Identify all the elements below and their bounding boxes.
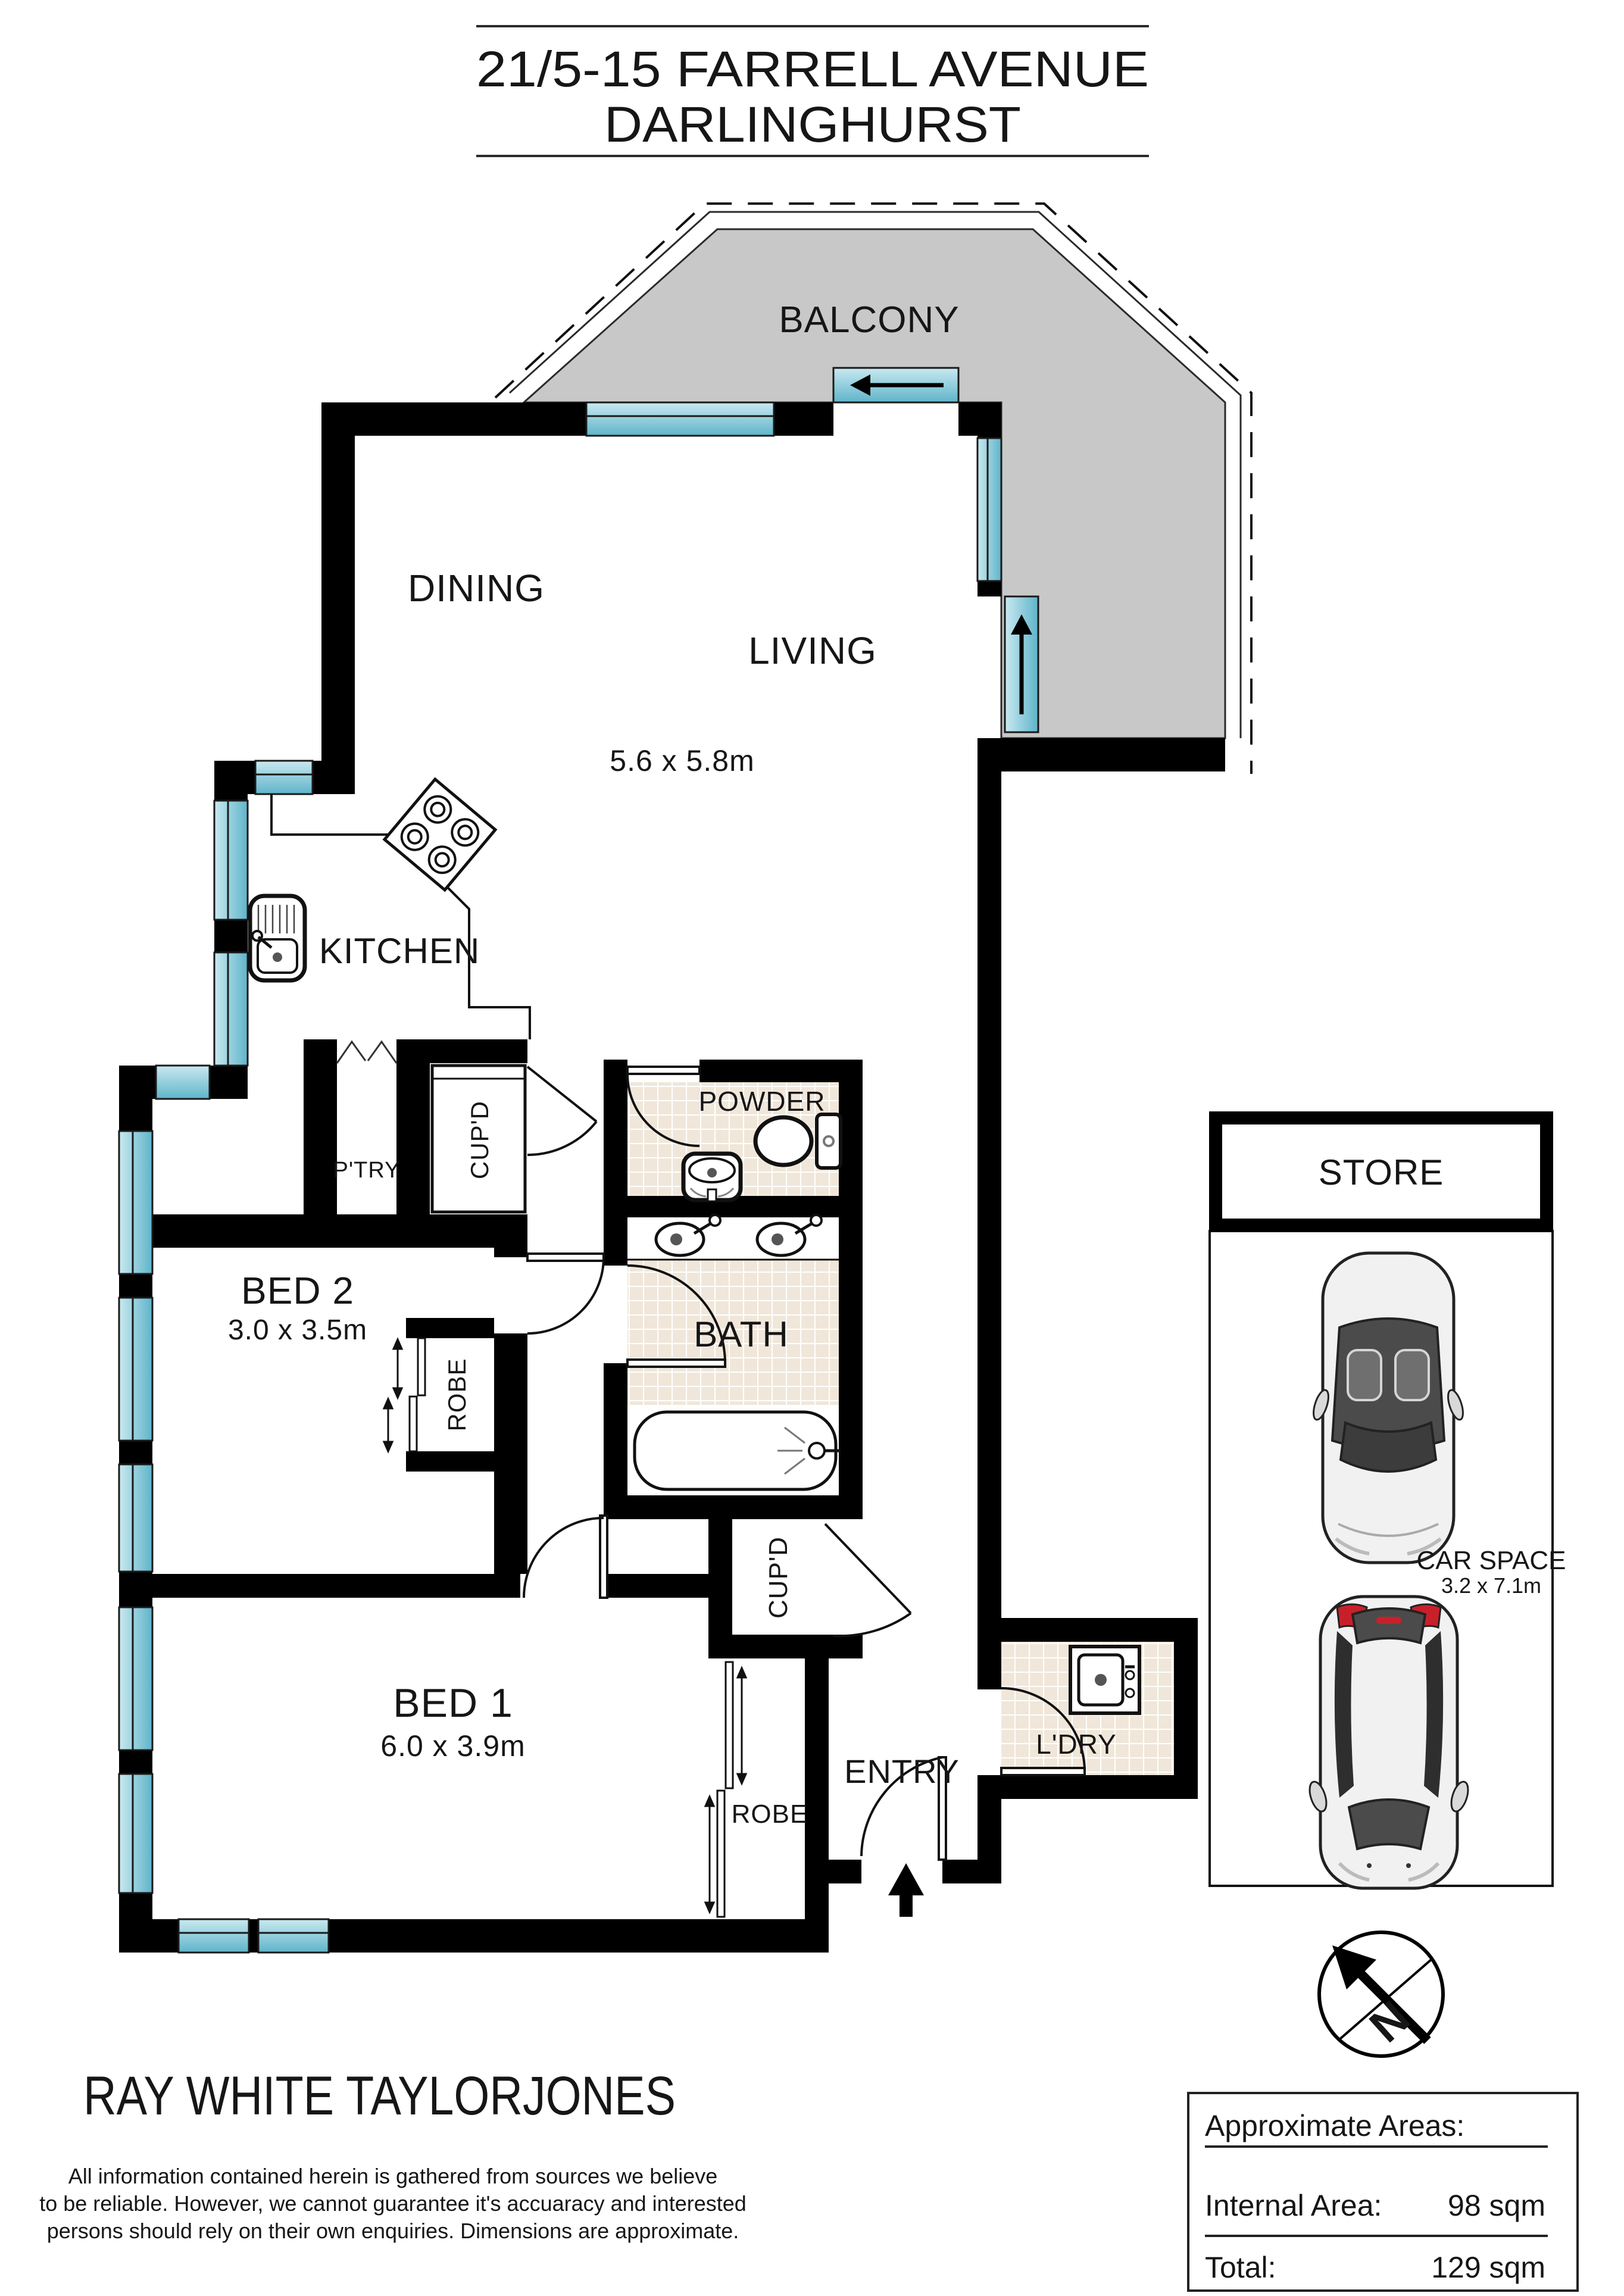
toilet-bowl-icon [755,1117,811,1165]
left-window-4 [119,1607,152,1750]
living-dims-label: 5.6 x 5.8m [610,744,754,777]
total-area-value: 129 sqm [1431,2251,1545,2284]
bed1-robe-panel-1 [726,1662,733,1788]
title-block: 21/5-15 FARRELL AVENUE DARLINGHURST [476,26,1149,156]
pantry-bifold-door [337,1042,396,1063]
parking-block: STORE CAR SPACE 3.2 x 7.1m [1210,1118,1566,1888]
store-label: STORE [1319,1152,1444,1192]
floorplan-canvas: 21/5-15 FARRELL AVENUE DARLINGHURST BALC… [0,0,1624,2296]
floorplan-page: 21/5-15 FARRELL AVENUE DARLINGHURST BALC… [0,0,1624,2296]
entry-label: ENTRY [844,1753,960,1790]
bed2-robe-label: ROBE [443,1358,471,1431]
powder-door-leaf [627,1067,699,1074]
kitchen-sink-icon [250,896,305,980]
dining-jog-window [255,761,313,794]
bed2-dims-label: 3.0 x 3.5m [228,1314,367,1346]
bed2-door-arc [527,1257,604,1333]
internal-area-label: Internal Area: [1205,2189,1382,2222]
laundry-door-leaf [1001,1768,1085,1775]
bath-door-leaf [627,1360,725,1367]
left-window-5 [119,1774,152,1893]
total-area-label: Total: [1205,2251,1276,2284]
kitchen-jog-window [156,1066,210,1099]
page-title-line2: DARLINGHURST [604,96,1021,152]
disclaimer-line-2: to be reliable. However, we cannot guara… [39,2191,747,2216]
car-space-label: CAR SPACE [1416,1546,1566,1575]
left-window-1 [119,1131,152,1274]
hardtop-car-icon [1307,1597,1472,1888]
powder-label: POWDER [699,1086,826,1117]
areas-box: Approximate Areas: Internal Area: 98 sqm… [1188,2093,1578,2291]
kitchen-window-2 [214,952,248,1066]
cooktop-icon [385,779,495,890]
page-title-line1: 21/5-15 FARRELL AVENUE [476,41,1149,97]
bed2-robe-panel-1 [418,1338,425,1395]
car-space-dims-label: 3.2 x 7.1m [1441,1573,1541,1598]
kitchen-label: KITCHEN [319,931,480,971]
left-window-2 [119,1298,152,1441]
living-right-window [977,438,1001,581]
kitchen-window-1 [214,801,248,920]
living-label: LIVING [748,629,877,672]
hall-cupboard-door-leaf [527,1067,596,1122]
bed1-bottom-window-2 [258,1919,329,1953]
powder-basin-icon [683,1154,741,1201]
bed1-bottom-window-1 [179,1919,249,1953]
bed1-robe-panel-2 [717,1791,724,1917]
entry-arrow-icon [888,1863,924,1917]
toilet-tank-icon [817,1114,841,1168]
bed1-robe-label: ROBE [732,1800,808,1829]
bath-label: BATH [694,1314,789,1354]
pantry-label: P'TRY [333,1158,401,1183]
bed2-robe-panel-2 [410,1397,417,1451]
left-window-3 [119,1464,152,1572]
footer-block: RAY WHITE TAYLORJONES All information co… [39,2066,747,2243]
laundry-label: L'DRY [1036,1729,1117,1760]
disclaimer-line-1: All information contained herein is gath… [68,2164,718,2188]
disclaimer-line-3: persons should rely on their own enquiri… [47,2219,739,2243]
bed1-label: BED 1 [393,1680,513,1726]
hall-cupboard-door-arc [527,1122,596,1155]
balcony-label: BALCONY [779,299,959,341]
convertible-car-icon [1310,1253,1466,1563]
bed1-door-leaf [600,1516,607,1598]
balcony-area: BALCONY [495,204,1251,774]
entry-cupboard-door-leaf [825,1524,911,1613]
bathtub-icon [635,1412,841,1489]
bed2-label: BED 2 [241,1269,354,1312]
entry-cupboard-door-arc [833,1613,911,1636]
agency-brand: RAY WHITE TAYLORJONES [83,2066,676,2126]
areas-title: Approximate Areas: [1205,2109,1464,2142]
bed1-door-arc [524,1518,604,1598]
bed1-dims-label: 6.0 x 3.9m [380,1729,525,1763]
bed2-door-leaf [527,1254,604,1261]
internal-area-value: 98 sqm [1448,2189,1545,2222]
dining-label: DINING [408,567,545,610]
north-compass: N [1319,1932,1443,2056]
living-top-window [586,402,774,436]
laundry-fixtures [1070,1647,1139,1713]
entry-cupboard-label: CUP'D [764,1536,793,1619]
hall-cupboard-label: CUP'D [466,1101,494,1179]
